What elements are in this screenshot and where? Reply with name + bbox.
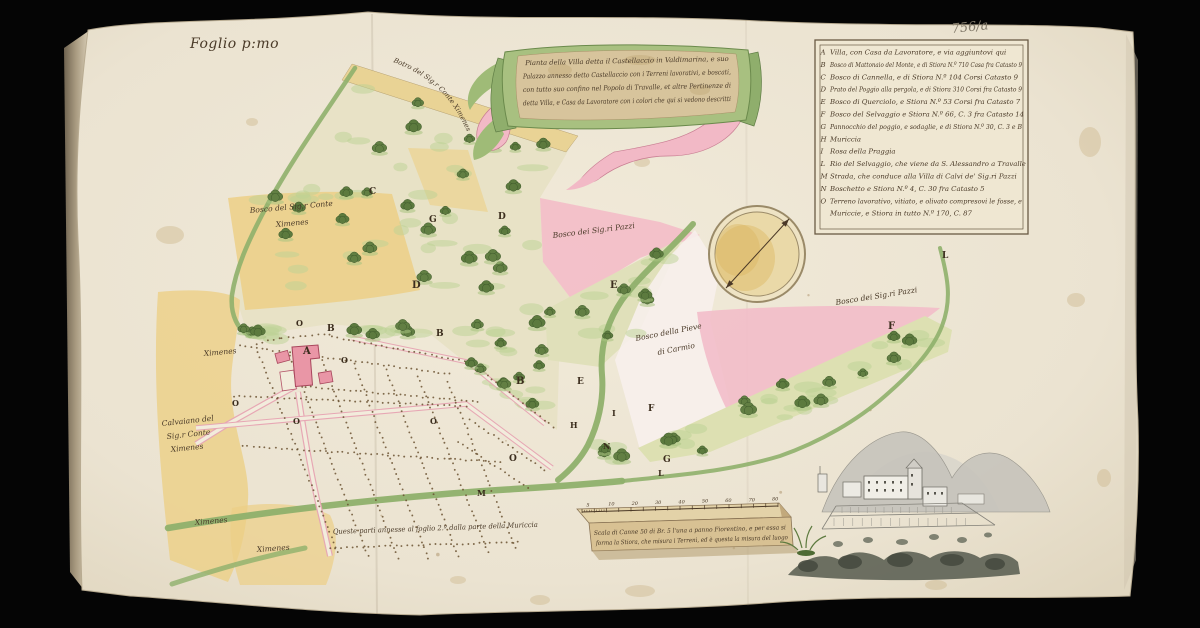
parcel-dot: [467, 433, 469, 435]
parcel-dot: [522, 402, 524, 404]
parcel-dot: [355, 447, 357, 449]
parcel-dot: [390, 537, 392, 539]
parcel-dot: [464, 423, 466, 425]
parcel-dot: [431, 457, 433, 459]
parcel-dot: [372, 411, 374, 413]
parcel-dot: [355, 368, 357, 370]
parcel-dot: [521, 453, 523, 455]
parcel-dot: [431, 488, 433, 490]
legend-text: Bosco di Cannella, e di Stiora N.º 104 C…: [829, 73, 1019, 81]
parcel-dot: [399, 402, 401, 404]
parcel-dot: [391, 384, 393, 386]
parcel-dot: [347, 504, 349, 506]
map-letter-A: A: [302, 346, 311, 357]
parcel-dot: [409, 510, 411, 512]
parcel-dot: [351, 514, 353, 516]
parcel-dot: [338, 389, 340, 391]
parcel-dot: [553, 427, 555, 429]
parcel-dot: [415, 447, 417, 449]
parcel-dot: [325, 450, 327, 452]
parcel-dot: [337, 400, 339, 402]
parcel-dot: [313, 489, 315, 491]
parcel-dot: [490, 490, 492, 492]
scale-tick: 10: [608, 502, 615, 508]
parcel-dot: [423, 544, 425, 546]
map-letter-D: D: [498, 212, 506, 222]
legend-key: O: [821, 197, 827, 205]
parcel-dot: [317, 333, 319, 335]
parcel-dot: [530, 460, 532, 462]
parcel-dot: [477, 401, 479, 403]
parcel-dot: [349, 509, 351, 511]
folio-label: Foglio p:mo: [189, 36, 279, 52]
parcel-dot: [343, 494, 345, 496]
parcel-dot: [455, 402, 457, 404]
parcel-dot: [311, 335, 313, 337]
parcel-dot: [459, 405, 461, 407]
parcel-dot: [377, 401, 379, 403]
parcel-dot: [471, 510, 473, 512]
parcel-dot: [466, 499, 468, 501]
grass-blotch: [288, 265, 308, 274]
parcel-dot: [483, 428, 485, 430]
parcel-dot: [269, 447, 271, 449]
parcel-dot: [355, 361, 357, 363]
parcel-dot: [485, 546, 487, 548]
parcel-dot: [359, 378, 361, 380]
parcel-dot: [462, 444, 464, 446]
scale-tick: 30: [655, 500, 662, 506]
parcel-dot: [291, 361, 293, 363]
map-letter-E: E: [610, 280, 618, 291]
paper-stain: [156, 226, 184, 244]
parcel-dot: [333, 358, 335, 360]
parcel-dot: [389, 379, 391, 381]
paper-stain: [1097, 469, 1111, 487]
legend-key: A: [820, 49, 826, 57]
parcel-dot: [540, 467, 542, 469]
parcel-dot: [300, 459, 302, 461]
parcel-dot: [278, 350, 280, 352]
scale-tick: 50: [702, 499, 709, 505]
legend-key: I: [820, 148, 824, 156]
parcel-dot: [417, 451, 419, 453]
map-letter-C: C: [369, 187, 376, 197]
parcel-dot: [267, 339, 269, 341]
parcel-dot: [337, 551, 339, 553]
parcel-dot: [383, 365, 385, 367]
legend-text: Rio del Selvaggio, che viene da S. Aless…: [829, 160, 1026, 168]
parcel-dot: [496, 501, 498, 503]
legend-key: H: [820, 135, 828, 143]
parcel-dot: [423, 467, 425, 469]
parcel-dot: [417, 376, 419, 378]
parcel-dot: [483, 469, 485, 471]
parcel-dot: [347, 427, 349, 429]
map-letter-O: O: [232, 398, 239, 408]
parcel-dot: [439, 398, 441, 400]
parcel-dot: [327, 399, 329, 401]
paper-stain: [925, 580, 947, 590]
parcel-dot: [384, 545, 386, 547]
parcel-dot: [341, 451, 343, 453]
parcel-dot: [548, 422, 550, 424]
parcel-dot: [493, 495, 495, 497]
parcel-dot: [300, 397, 302, 399]
parcel-dot: [375, 499, 377, 501]
parcel-dot: [387, 452, 389, 454]
parcel-dot: [443, 398, 445, 400]
parcel-dot: [411, 515, 413, 517]
parcel-dot: [379, 509, 381, 511]
parcel-dot: [271, 396, 273, 398]
map-letter-B: B: [436, 329, 444, 339]
parcel-dot: [327, 452, 329, 454]
parcel-dot: [307, 401, 309, 403]
parcel-dot: [481, 464, 483, 466]
parcel-dot: [458, 478, 460, 480]
parcel-dot: [343, 399, 345, 401]
parcel-dot: [498, 506, 500, 508]
parcel-dot: [389, 545, 391, 547]
parcel-dot: [305, 399, 307, 401]
parcel-dot: [419, 536, 421, 538]
parcel-dot: [543, 469, 545, 471]
parcel-dot: [239, 344, 241, 346]
parcel-dot: [257, 351, 259, 353]
parcel-dot: [478, 426, 480, 428]
parcel-dot: [372, 489, 374, 491]
map-letter-H: H: [570, 420, 578, 430]
parcel-dot: [399, 367, 401, 369]
parcel-dot: [315, 386, 317, 388]
grass-blotch: [522, 240, 542, 250]
parcel-dot: [370, 453, 372, 455]
villa-left-wing: [843, 482, 861, 497]
parcel-dot: [421, 462, 423, 464]
parcel-dot: [421, 404, 423, 406]
parcel-dot: [449, 398, 451, 400]
parcel-dot: [393, 393, 395, 395]
parcel-dot: [437, 458, 439, 460]
parcel-dot: [468, 504, 470, 506]
parcel-dot: [327, 357, 329, 359]
parcel-dot: [347, 452, 349, 454]
parcel-dot: [359, 341, 361, 343]
parcel-dot: [259, 356, 261, 358]
parcel-dot: [272, 350, 274, 352]
parcel-dot: [381, 345, 383, 347]
parcel-dot: [341, 411, 343, 413]
legend-text: Prato del Poggio alla pergola, e di Stio…: [829, 86, 1022, 94]
parcel-dot: [385, 446, 387, 448]
parcel-dot: [332, 399, 334, 401]
grass-blotch: [466, 340, 490, 348]
parcel-dot: [454, 399, 456, 401]
parcel-dot: [411, 545, 413, 547]
legend-text: Boschetto e Stiora N.º 4, C. 30 fra Cata…: [829, 185, 984, 193]
grass-blotch: [427, 240, 458, 247]
parcel-dot: [400, 393, 402, 395]
parcel-dot: [311, 411, 313, 413]
parcel-dot: [450, 543, 452, 545]
grass-blotch: [517, 164, 549, 171]
parcel-dot: [352, 546, 354, 548]
parcel-dot: [378, 545, 380, 547]
parcel-dot: [421, 386, 423, 388]
parcel-dot: [321, 359, 323, 361]
parcel-dot: [250, 346, 252, 348]
parcel-dot: [308, 480, 310, 482]
parcel-dot: [387, 375, 389, 377]
parcel-dot: [438, 427, 440, 429]
parcel-dot: [494, 461, 496, 463]
parcel-dot: [336, 337, 338, 339]
parcel-dot: [424, 391, 426, 393]
legend-text: Villa, con Casa da Lavoratore, e via agg…: [830, 49, 1006, 57]
compass-wash-2: [716, 224, 760, 276]
parcel-dot: [534, 412, 536, 414]
parcel-dot: [438, 504, 440, 506]
parcel-dot: [397, 348, 399, 350]
parcel-dot: [341, 488, 343, 490]
parcel-dot: [421, 542, 423, 544]
parcel-dot: [274, 392, 276, 394]
parcel-dot: [310, 385, 312, 387]
parcel-dot: [517, 541, 519, 543]
parcel-dot: [439, 433, 441, 435]
parcel-dot: [382, 402, 384, 404]
parcel-dot: [419, 380, 421, 382]
parcel-dot: [267, 396, 269, 398]
parcel-dot: [423, 546, 425, 548]
parcel-dot: [372, 392, 374, 394]
parcel-dot: [359, 458, 361, 460]
parcel-dot: [398, 400, 400, 402]
legend-key: F: [820, 111, 826, 119]
map-letter-B: B: [516, 376, 524, 387]
parcel-dot: [515, 547, 517, 549]
fox-speck: [436, 553, 440, 557]
parcel-dot: [507, 444, 509, 446]
parcel-dot: [499, 511, 501, 513]
parcel-dot: [457, 407, 459, 409]
parcel-dot: [331, 385, 333, 387]
parcel-dot: [331, 463, 333, 465]
parcel-dot: [428, 401, 430, 403]
map-letter-O: O: [430, 416, 437, 426]
parcel-dot: [333, 541, 335, 543]
parcel-dot: [366, 391, 368, 393]
parcel-dot: [498, 438, 500, 440]
parcel-dot: [437, 404, 439, 406]
parcel-dot: [266, 348, 268, 350]
parcel-dot: [316, 399, 318, 401]
parcel-dot: [363, 389, 365, 391]
parcel-dot: [314, 450, 316, 452]
parcel-dot: [345, 422, 347, 424]
parcel-dot: [281, 412, 283, 414]
grass-blotch: [263, 333, 289, 344]
parcel-dot: [408, 351, 410, 353]
parcel-dot: [416, 395, 418, 397]
legend-text: Rosa della Praggia: [829, 148, 896, 156]
map-letter-F: F: [888, 321, 895, 332]
parcel-dot: [441, 357, 443, 359]
grass-clump: [797, 550, 815, 556]
parcel-dot: [440, 543, 442, 545]
map-letter-L: L: [942, 251, 949, 261]
parcel-dot: [352, 520, 354, 522]
parcel-dot: [511, 537, 513, 539]
parcel-dot: [389, 458, 391, 460]
parcel-dot: [302, 464, 304, 466]
parcel-dot: [462, 543, 464, 545]
parcel-dot: [331, 536, 333, 538]
fox-speck: [807, 294, 809, 296]
grass-blotch: [285, 281, 307, 290]
legend-text: Strada, che conduce alla Villa di Calvi …: [830, 173, 1017, 181]
parcel-dot: [473, 543, 475, 545]
parcel-dot: [485, 460, 487, 462]
parcel-dot: [462, 417, 464, 419]
parcel-dot: [391, 542, 393, 544]
parcel-dot: [460, 412, 462, 414]
parcel-dot: [456, 543, 458, 545]
legend-key: L: [820, 160, 826, 168]
parcel-dot: [318, 505, 320, 507]
parcel-dot: [419, 352, 421, 354]
parcel-dot: [323, 364, 325, 366]
parcel-dot: [461, 399, 463, 401]
parcel-dot: [279, 337, 281, 339]
parcel-dot: [432, 396, 434, 398]
parcel-dot: [361, 384, 363, 386]
parcel-dot: [485, 475, 487, 477]
parcel-dot: [362, 547, 364, 549]
parcel-dot: [373, 546, 375, 548]
parcel-dot: [292, 337, 294, 339]
parcel-dot: [358, 374, 360, 376]
parcel-dot: [458, 359, 460, 361]
parcel-dot: [402, 488, 404, 490]
parcel-dot: [304, 468, 306, 470]
parcel-dot: [332, 389, 334, 391]
parcel-dot: [339, 405, 341, 407]
parcel-dot: [343, 416, 345, 418]
parcel-dot: [506, 541, 508, 543]
parcel-dot: [340, 484, 342, 486]
parcel-dot: [404, 394, 406, 396]
parcel-dot: [353, 451, 355, 453]
parcel-dot: [319, 450, 321, 452]
parcel-dot: [406, 544, 408, 546]
parcel-dot: [472, 400, 474, 402]
parcel-dot: [418, 545, 420, 547]
grass-blotch: [777, 414, 793, 420]
parcel-dot: [454, 458, 456, 460]
parcel-dot: [377, 363, 379, 365]
parcel-dot: [333, 468, 335, 470]
parcel-dot: [449, 387, 451, 389]
parcel-dot: [343, 338, 345, 340]
parcel-dot: [263, 446, 265, 448]
parcel-dot: [501, 542, 503, 544]
parcel-dot: [431, 354, 433, 356]
parcel-dot: [431, 403, 433, 405]
parcel-dot: [516, 451, 518, 453]
parcel-dot: [322, 356, 324, 358]
parcel-dot: [487, 432, 489, 434]
parcel-dot: [511, 542, 513, 544]
map-letter-D: D: [412, 280, 421, 291]
parcel-dot: [349, 400, 351, 402]
parcel-dot: [366, 401, 368, 403]
parcel-dot: [386, 346, 388, 348]
parcel-dot: [403, 494, 405, 496]
parcel-dot: [404, 421, 406, 423]
parcel-dot: [325, 448, 327, 450]
parcel-dot: [469, 418, 471, 420]
parcel-dot: [393, 455, 395, 457]
parcel-dot: [426, 456, 428, 458]
parcel-dot: [353, 340, 355, 342]
map-letter-N: N: [603, 441, 610, 451]
legend-key: C: [821, 73, 827, 81]
parcel-dot: [405, 499, 407, 501]
parcel-dot: [388, 393, 390, 395]
parcel-dot: [408, 431, 410, 433]
parcel-dot: [355, 390, 357, 392]
parcel-dot: [367, 546, 369, 548]
parcel-dot: [321, 436, 323, 438]
parcel-dot: [364, 474, 366, 476]
parcel-dot: [364, 550, 366, 552]
parcel-dot: [388, 364, 390, 366]
parcel-dot: [446, 447, 448, 449]
parcel-dot: [443, 442, 445, 444]
parcel-dot: [396, 544, 398, 546]
parcel-dot: [379, 432, 381, 434]
parcel-dot: [457, 473, 459, 475]
map-letter-I: I: [612, 408, 616, 418]
parcel-dot: [462, 489, 464, 491]
parcel-dot: [413, 441, 415, 443]
outbuilding-2: [318, 371, 333, 384]
parcel-dot: [317, 426, 319, 428]
parcel-dot: [327, 526, 329, 528]
parcel-dot: [309, 407, 311, 409]
parcel-dot: [452, 462, 454, 464]
parcel-dot: [480, 456, 482, 458]
parcel-dot: [259, 446, 261, 448]
parcel-dot: [410, 402, 412, 404]
page-right-edge: [1124, 34, 1138, 590]
parcel-dot: [313, 416, 315, 418]
parcel-dot: [500, 468, 502, 470]
parcel-dot: [359, 453, 361, 455]
parcel-dot: [307, 474, 309, 476]
parcel-dot: [467, 427, 469, 429]
parcel-dot: [273, 339, 275, 341]
parcel-dot: [357, 453, 359, 455]
parcel-dot: [393, 402, 395, 404]
map-letter-O: O: [296, 318, 303, 328]
scanned-map-page: Pianta della Villa detta il Castellaccio…: [0, 0, 1200, 628]
parcel-dot: [398, 455, 400, 457]
map-letter-O: O: [509, 454, 517, 464]
parcel-dot: [277, 402, 279, 404]
